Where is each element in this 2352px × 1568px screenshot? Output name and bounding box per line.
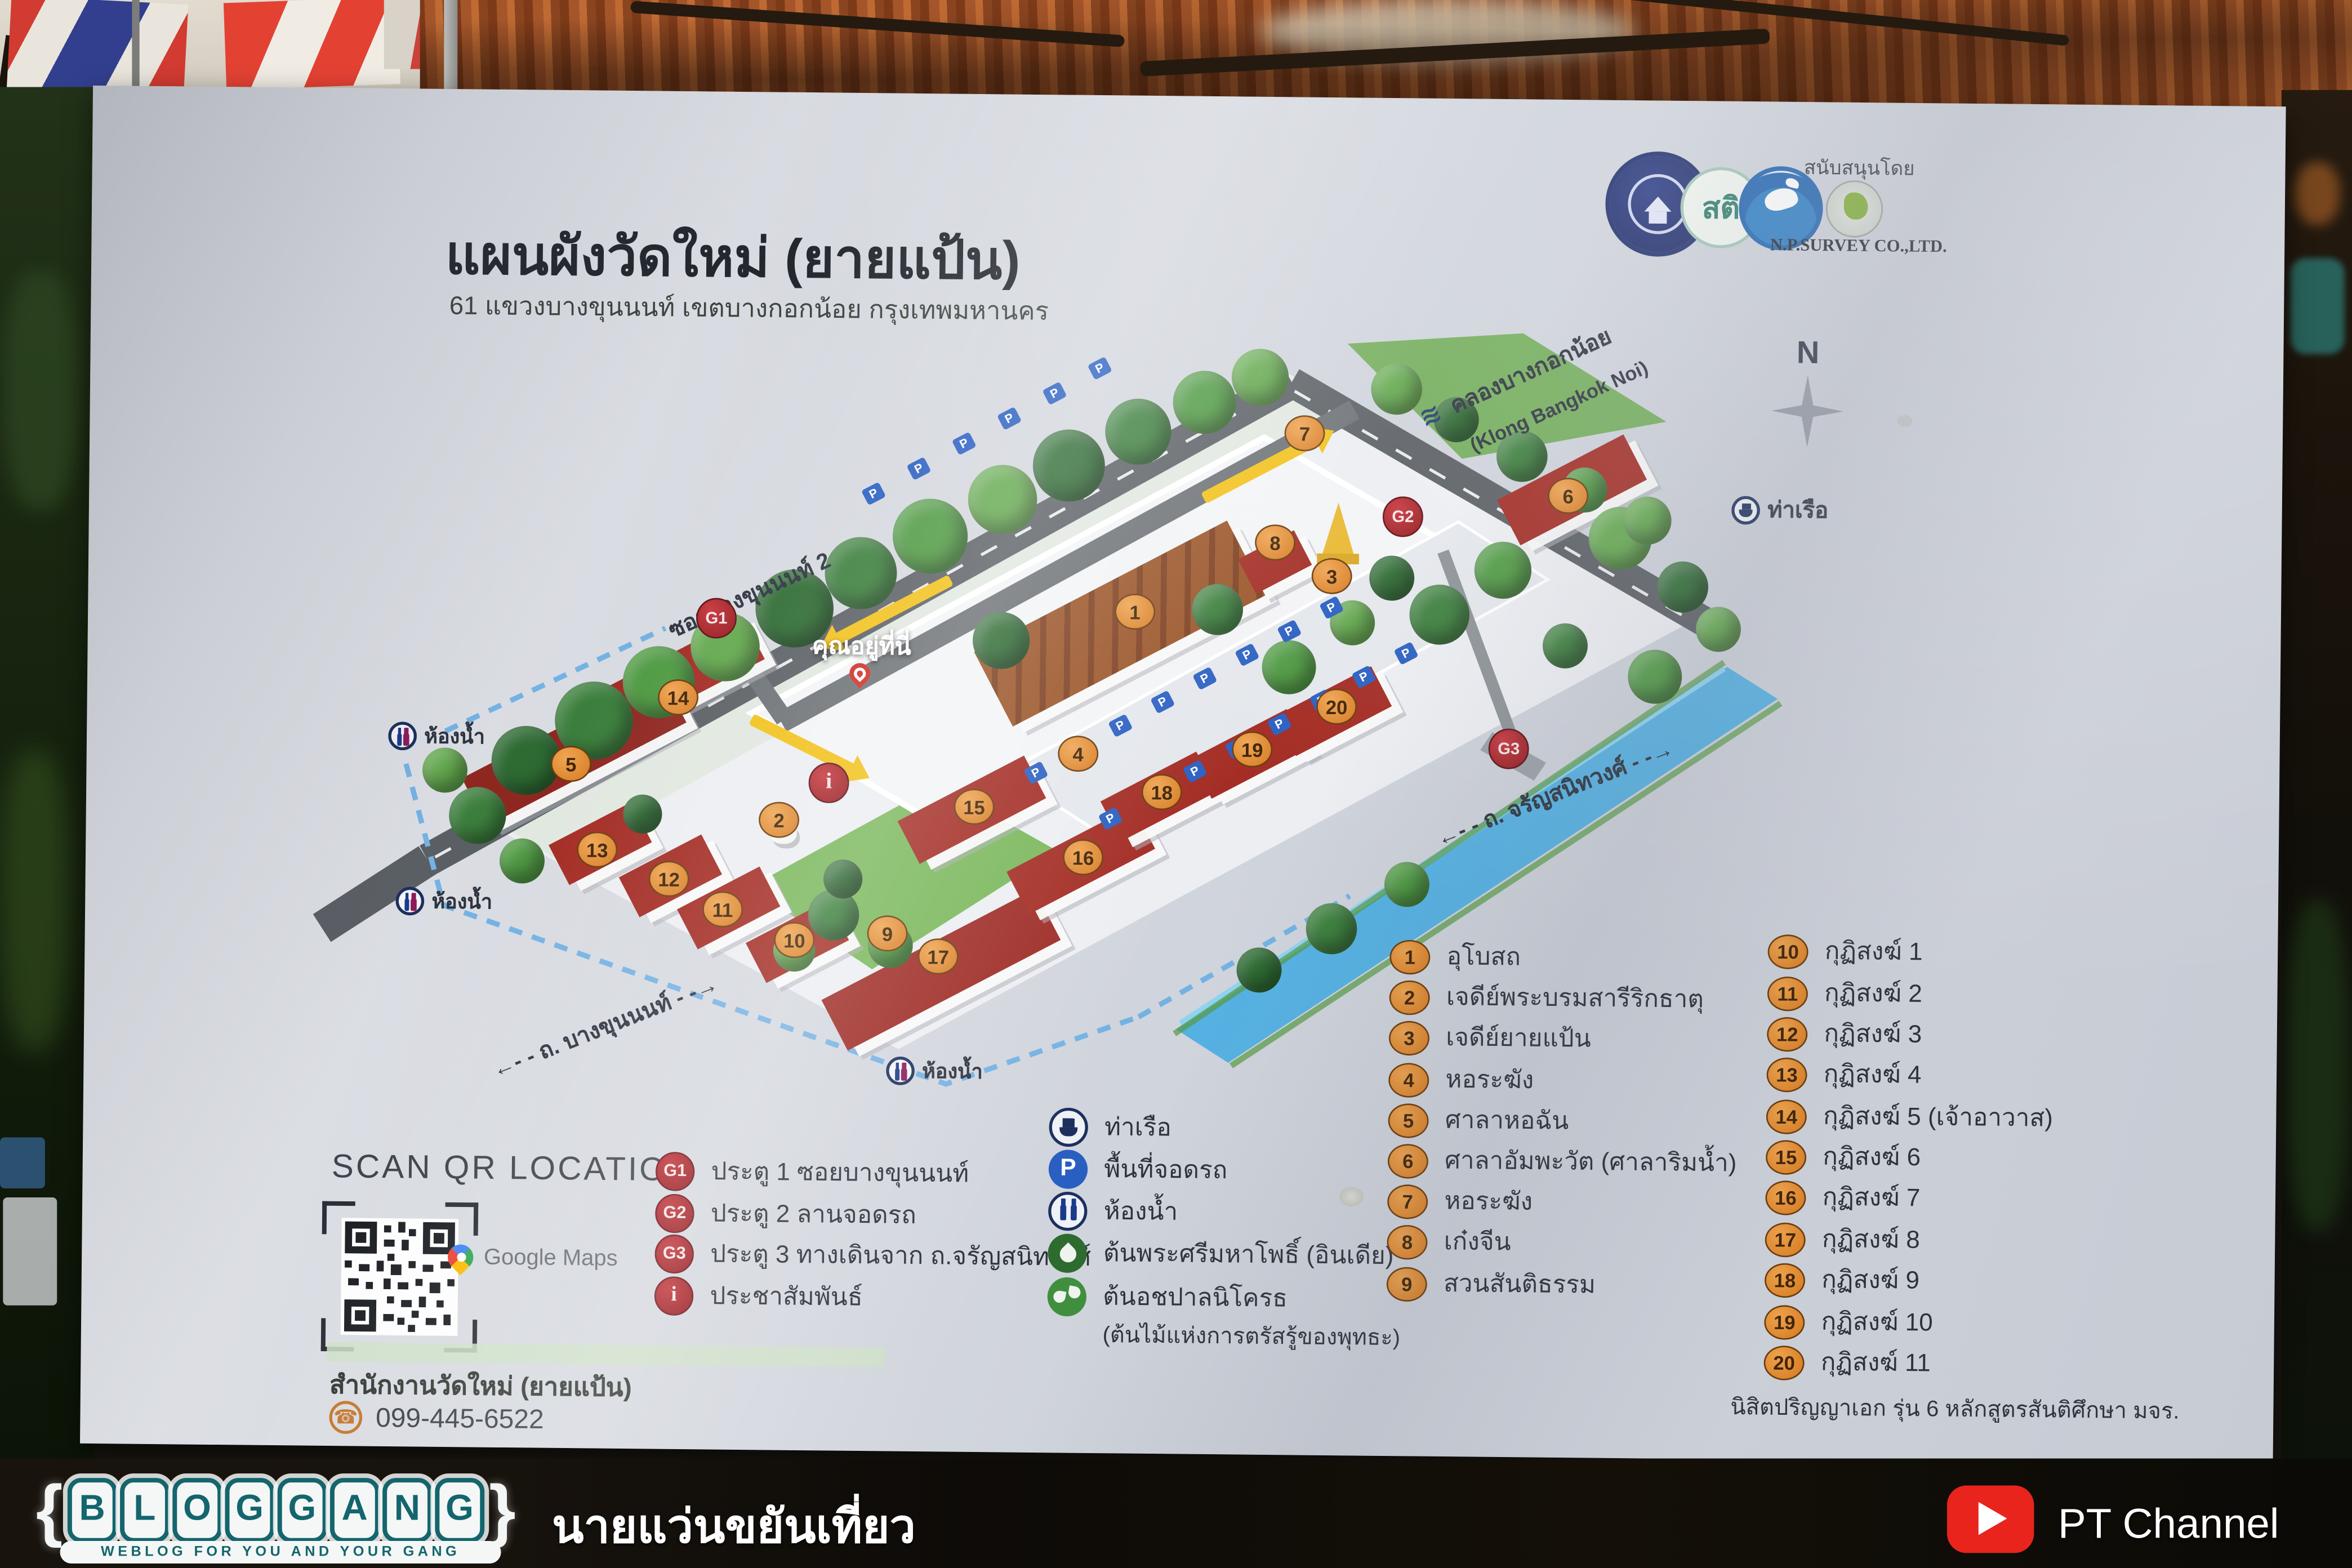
map-signboard: แผนผังวัดใหม่ (ยายแป้น) 61 แขวงบางขุนนนท… — [80, 86, 2286, 1464]
map-marker-15: 15 — [954, 789, 995, 825]
kuti-badge: 18 — [1765, 1262, 1805, 1297]
tree — [1474, 541, 1531, 599]
bodhi-leaf-icon — [1048, 1233, 1087, 1273]
kuti-label: กุฏิสงฆ์ 3 — [1824, 1014, 1922, 1054]
thai-flag — [7, 0, 188, 97]
place-label: หอระฆัง — [1445, 1061, 1534, 1101]
gate-g3-badge: G3 — [654, 1235, 694, 1274]
map-label: คุณอยู่ที่นี่ — [812, 628, 911, 666]
brace-left: { — [36, 1473, 63, 1545]
temple-icon — [1645, 197, 1672, 212]
kuti-label: กุฏิสงฆ์ 8 — [1822, 1220, 1920, 1260]
map-marker-14: 14 — [658, 679, 699, 716]
wc-icon — [395, 886, 424, 915]
teal-lantern — [2291, 258, 2345, 354]
bodhi-label: ต้นพระศรีมหาโพธิ์ (อินเดีย) — [1103, 1234, 1394, 1276]
golden-chedi — [1321, 502, 1355, 556]
tree — [422, 747, 468, 793]
gate-g1-badge: G1 — [656, 1152, 695, 1191]
boat-icon — [1731, 495, 1760, 524]
supported-by-label: สนับสนุนโดย — [1784, 152, 1935, 185]
np-survey-name: N.P.SURVEY CO.,LTD. — [1741, 237, 1976, 257]
gate-g3-label: ประตู 3 ทางเดินจาก ถ.จรัญสนิทวงศ์ — [710, 1235, 1092, 1278]
tree — [623, 794, 662, 834]
place-badge: 8 — [1387, 1224, 1427, 1259]
stain — [1339, 1187, 1364, 1206]
parking-label: พื้นที่จอดรถ — [1104, 1150, 1228, 1190]
tree — [1105, 398, 1171, 465]
credit-note: นิสิตปริญญาเอก รุ่น 6 หลักสูตรสันติศึกษา… — [1730, 1389, 2180, 1429]
tree — [1262, 640, 1316, 694]
kuti-label: กุฏิสงฆ์ 4 — [1823, 1055, 1921, 1095]
place-label: สวนสันติธรรม — [1444, 1264, 1596, 1305]
legend-facility-row: P พื้นที่จอดรถ — [1049, 1150, 1228, 1190]
pier-label: ท่าเรือ — [1104, 1108, 1171, 1147]
legend-info-row: i ประชาสัมพันธ์ — [654, 1276, 863, 1317]
bloggang-letter-tile: G — [225, 1477, 274, 1542]
bloggang-tagline: WEBLOG FOR YOU AND YOUR GANG — [60, 1541, 501, 1563]
legend-facility-row: ห้องน้ำ — [1048, 1192, 1178, 1232]
map-marker-10: 10 — [774, 922, 815, 959]
tree — [1409, 585, 1470, 645]
tree — [1306, 903, 1357, 954]
map-marker-12: 12 — [648, 861, 689, 897]
place-badge: 5 — [1388, 1103, 1428, 1138]
legend-gate-row: G3 ประตู 3 ทางเดินจาก ถ.จรัญสนิทวงศ์ — [654, 1235, 1091, 1278]
place-label: เจดีย์พระบรมสารีริกธาตุ — [1446, 978, 1704, 1019]
place-badge: 1 — [1389, 939, 1430, 974]
tree — [1173, 371, 1236, 434]
map-label: ห้องน้ำ — [388, 719, 485, 752]
brace-right: } — [489, 1473, 516, 1545]
tree — [1369, 555, 1415, 601]
map-marker-G1: G1 — [696, 598, 737, 639]
bloggang-letter-tile: G — [435, 1477, 484, 1542]
red-white-flag — [224, 0, 400, 90]
map-marker-5: 5 — [551, 746, 592, 782]
kuti-label: กุฏิสงฆ์ 9 — [1821, 1260, 1919, 1300]
map-marker-G3: G3 — [1488, 728, 1529, 769]
bloggang-letter-tile: N — [382, 1477, 432, 1542]
tree — [1543, 623, 1588, 669]
foliage-highlight — [0, 750, 69, 1050]
kuti-badge: 17 — [1765, 1222, 1806, 1257]
gate-g2-badge: G2 — [655, 1194, 694, 1233]
kuti-badge: 10 — [1767, 934, 1808, 969]
map-label-text: คุณอยู่ที่นี่ — [812, 628, 911, 666]
map-label: ห้องน้ำ — [886, 1053, 983, 1087]
tree — [808, 889, 859, 941]
tree — [491, 725, 561, 795]
bloggang-logo: { BLOGGANG } — [36, 1473, 516, 1545]
tree — [1384, 862, 1430, 907]
green-divider-bar — [327, 1342, 885, 1367]
background-sign-blue — [0, 1137, 45, 1188]
map-label-text: ห้องน้ำ — [922, 1054, 983, 1088]
gate-g2-label: ประตู 2 ลานจอดรถ — [711, 1195, 917, 1236]
foliage-highlight — [3, 270, 78, 510]
right-green-blob — [2286, 900, 2349, 1230]
kuti-badge: 11 — [1767, 975, 1808, 1010]
map-label: ท่าเรือ — [1731, 491, 1828, 528]
kuti-label: กุฏิสงฆ์ 5 (เจ้าอาวาส) — [1823, 1097, 2053, 1138]
place-badge: 4 — [1388, 1062, 1429, 1097]
legend-gate-row: G1 ประตู 1 ซอยบางขุนนนท์ — [656, 1152, 969, 1194]
tree — [449, 787, 506, 844]
map-marker-1: 1 — [1115, 594, 1156, 630]
map-marker-16: 16 — [1063, 839, 1104, 876]
tree — [973, 612, 1030, 669]
tree — [1192, 583, 1243, 635]
tree — [1696, 607, 1741, 652]
map-marker-6: 6 — [1548, 478, 1589, 514]
phone-number: 099-445-6522 — [376, 1402, 544, 1435]
map-marker-18: 18 — [1141, 774, 1182, 810]
phone-row: ☎ 099-445-6522 — [329, 1401, 544, 1436]
banyan-leaf-icon — [1047, 1277, 1086, 1317]
legend-facility-row: ท่าเรือ — [1049, 1108, 1171, 1148]
place-badge: 9 — [1387, 1266, 1427, 1301]
tree — [1032, 429, 1105, 502]
place-label: หอระฆัง — [1444, 1182, 1533, 1222]
place-label: เก๋งจีน — [1444, 1222, 1511, 1262]
map-marker-11: 11 — [702, 891, 743, 928]
bloggang-letter-tile: O — [172, 1477, 222, 1542]
map-label-text: ห้องน้ำ — [424, 719, 485, 752]
legend-facility-row: ต้นอชปาลนิโครธ — [1047, 1277, 1288, 1318]
background-sign-white — [3, 1197, 57, 1306]
legend-facility-row: ต้นพระศรีมหาโพธิ์ (อินเดีย) — [1048, 1233, 1394, 1276]
bloggang-letter-tile: G — [277, 1477, 327, 1542]
place-label: เจดีย์ยายแป้น — [1446, 1018, 1591, 1059]
legend-gate-row: G2 ประตู 2 ลานจอดรถ — [655, 1194, 916, 1236]
place-label: ศาลาอัมพะวัต (ศาลาริมน้ำ) — [1445, 1142, 1737, 1183]
tree — [1628, 649, 1682, 704]
qr-code — [341, 1218, 459, 1336]
boat-icon — [1049, 1108, 1088, 1147]
map-marker-9: 9 — [867, 915, 908, 952]
kuti-label: กุฏิสงฆ์ 6 — [1823, 1138, 1921, 1178]
kuti-badge: 12 — [1767, 1016, 1807, 1051]
tree — [823, 859, 863, 899]
qr-code-block — [321, 1201, 479, 1353]
kuti-label: กุฏิสงฆ์ 1 — [1825, 932, 1923, 972]
stain — [1897, 415, 1913, 427]
map-label-text: ห้องน้ำ — [431, 884, 492, 918]
banyan-sublabel: (ต้นไม้แห่งการตรัสรู้ของพุทธะ) — [1102, 1317, 1400, 1356]
right-warm-blob — [2295, 162, 2340, 225]
place-badge: 2 — [1389, 979, 1429, 1014]
bloggang-letter-tile: L — [120, 1477, 170, 1542]
restroom-icon — [1048, 1192, 1088, 1231]
tree — [892, 498, 968, 574]
kuti-label: กุฏิสงฆ์ 7 — [1822, 1178, 1920, 1218]
kuti-label: กุฏิสงฆ์ 2 — [1824, 974, 1922, 1014]
map-marker-8: 8 — [1255, 524, 1296, 561]
map-marker-G2: G2 — [1383, 496, 1424, 537]
emblem-inner-ring — [1628, 174, 1689, 235]
photo-of-temple-map-sign: แผนผังวัดใหม่ (ยายแป้น) 61 แขวงบางขุนนนท… — [0, 0, 2352, 1568]
blogger-handle: นายแว่นขยันเที่ยว — [552, 1489, 916, 1563]
kuti-badge: 19 — [1764, 1304, 1805, 1339]
youtube-icon — [1947, 1485, 2034, 1553]
tree — [1232, 349, 1289, 406]
banyan-label: ต้นอชปาลนิโครธ — [1103, 1277, 1288, 1318]
info-badge: i — [654, 1276, 694, 1316]
bloggang-letter-tile: B — [68, 1477, 117, 1542]
kuti-badge: 16 — [1765, 1180, 1806, 1215]
np-survey-logo — [1825, 180, 1883, 238]
google-maps-pin-icon — [443, 1239, 479, 1275]
parking-icon: P — [1049, 1150, 1088, 1189]
place-label: ศาลาหอฉัน — [1445, 1101, 1569, 1141]
tree — [968, 465, 1037, 534]
kuti-badge: 20 — [1763, 1345, 1804, 1380]
gate-g1-label: ประตู 1 ซอยบางขุนนนท์ — [711, 1152, 969, 1194]
restroom-label: ห้องน้ำ — [1103, 1192, 1178, 1232]
map-marker-4: 4 — [1058, 736, 1099, 772]
map-marker-2: 2 — [759, 801, 800, 838]
kuti-label: กุฏิสงฆ์ 11 — [1821, 1343, 1931, 1383]
temple-map: 1234567891011121314151617181920G1G2G3iซอ… — [297, 315, 1865, 1152]
place-badge: 7 — [1387, 1183, 1428, 1218]
phone-icon: ☎ — [329, 1401, 362, 1434]
info-label: ประชาสัมพันธ์ — [710, 1277, 863, 1317]
map-marker-20: 20 — [1316, 688, 1357, 725]
dove-icon — [1762, 184, 1800, 214]
bloggang-letter-tiles: BLOGGANG — [66, 1477, 486, 1542]
map-label-text: ท่าเรือ — [1767, 492, 1829, 528]
kuti-badge: 15 — [1766, 1139, 1806, 1174]
channel-name: PT Channel — [2058, 1500, 2279, 1548]
google-maps-row: Google Maps — [448, 1244, 618, 1271]
tree — [1623, 496, 1672, 545]
map-label: ห้องน้ำ — [395, 884, 492, 917]
map-marker-3: 3 — [1311, 558, 1352, 595]
tree — [500, 838, 545, 884]
tree — [1657, 561, 1708, 612]
wc-icon — [886, 1055, 915, 1084]
bloggang-letter-tile: A — [330, 1477, 380, 1542]
map-marker-17: 17 — [917, 938, 959, 975]
kuti-badge: 14 — [1766, 1099, 1807, 1134]
place-badge: 3 — [1389, 1020, 1429, 1055]
place-badge: 6 — [1388, 1143, 1428, 1178]
map-marker-i: i — [808, 763, 849, 804]
wc-icon — [388, 721, 417, 750]
google-maps-label: Google Maps — [484, 1245, 618, 1272]
kuti-badge: 13 — [1766, 1057, 1807, 1092]
scan-qr-title: SCAN QR LOCATION — [331, 1147, 693, 1190]
kuti-label: กุฏิสงฆ์ 10 — [1821, 1303, 1933, 1343]
place-label: อุโบสถ — [1446, 937, 1521, 977]
map-marker-7: 7 — [1284, 415, 1325, 452]
tree — [1236, 947, 1282, 993]
map-marker-13: 13 — [577, 831, 618, 868]
map-marker-19: 19 — [1232, 731, 1273, 768]
